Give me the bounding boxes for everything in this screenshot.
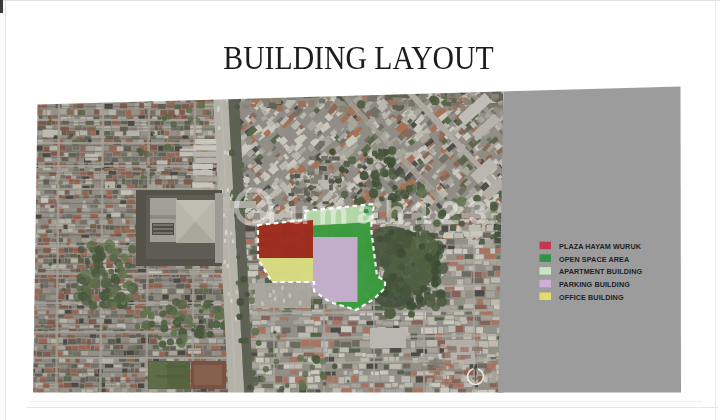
svg-text:APARTMENT BUILDING: APARTMENT BUILDING xyxy=(559,267,642,276)
svg-text:rumah123: rumah123 xyxy=(267,193,496,231)
svg-text:PARKING BUILDING: PARKING BUILDING xyxy=(559,280,630,289)
svg-text:PLAZA HAYAM WURUK: PLAZA HAYAM WURUK xyxy=(559,242,642,251)
svg-text:OPEN SPACE AREA: OPEN SPACE AREA xyxy=(559,255,629,264)
svg-text:OFFICE BUILDING: OFFICE BUILDING xyxy=(559,293,624,302)
